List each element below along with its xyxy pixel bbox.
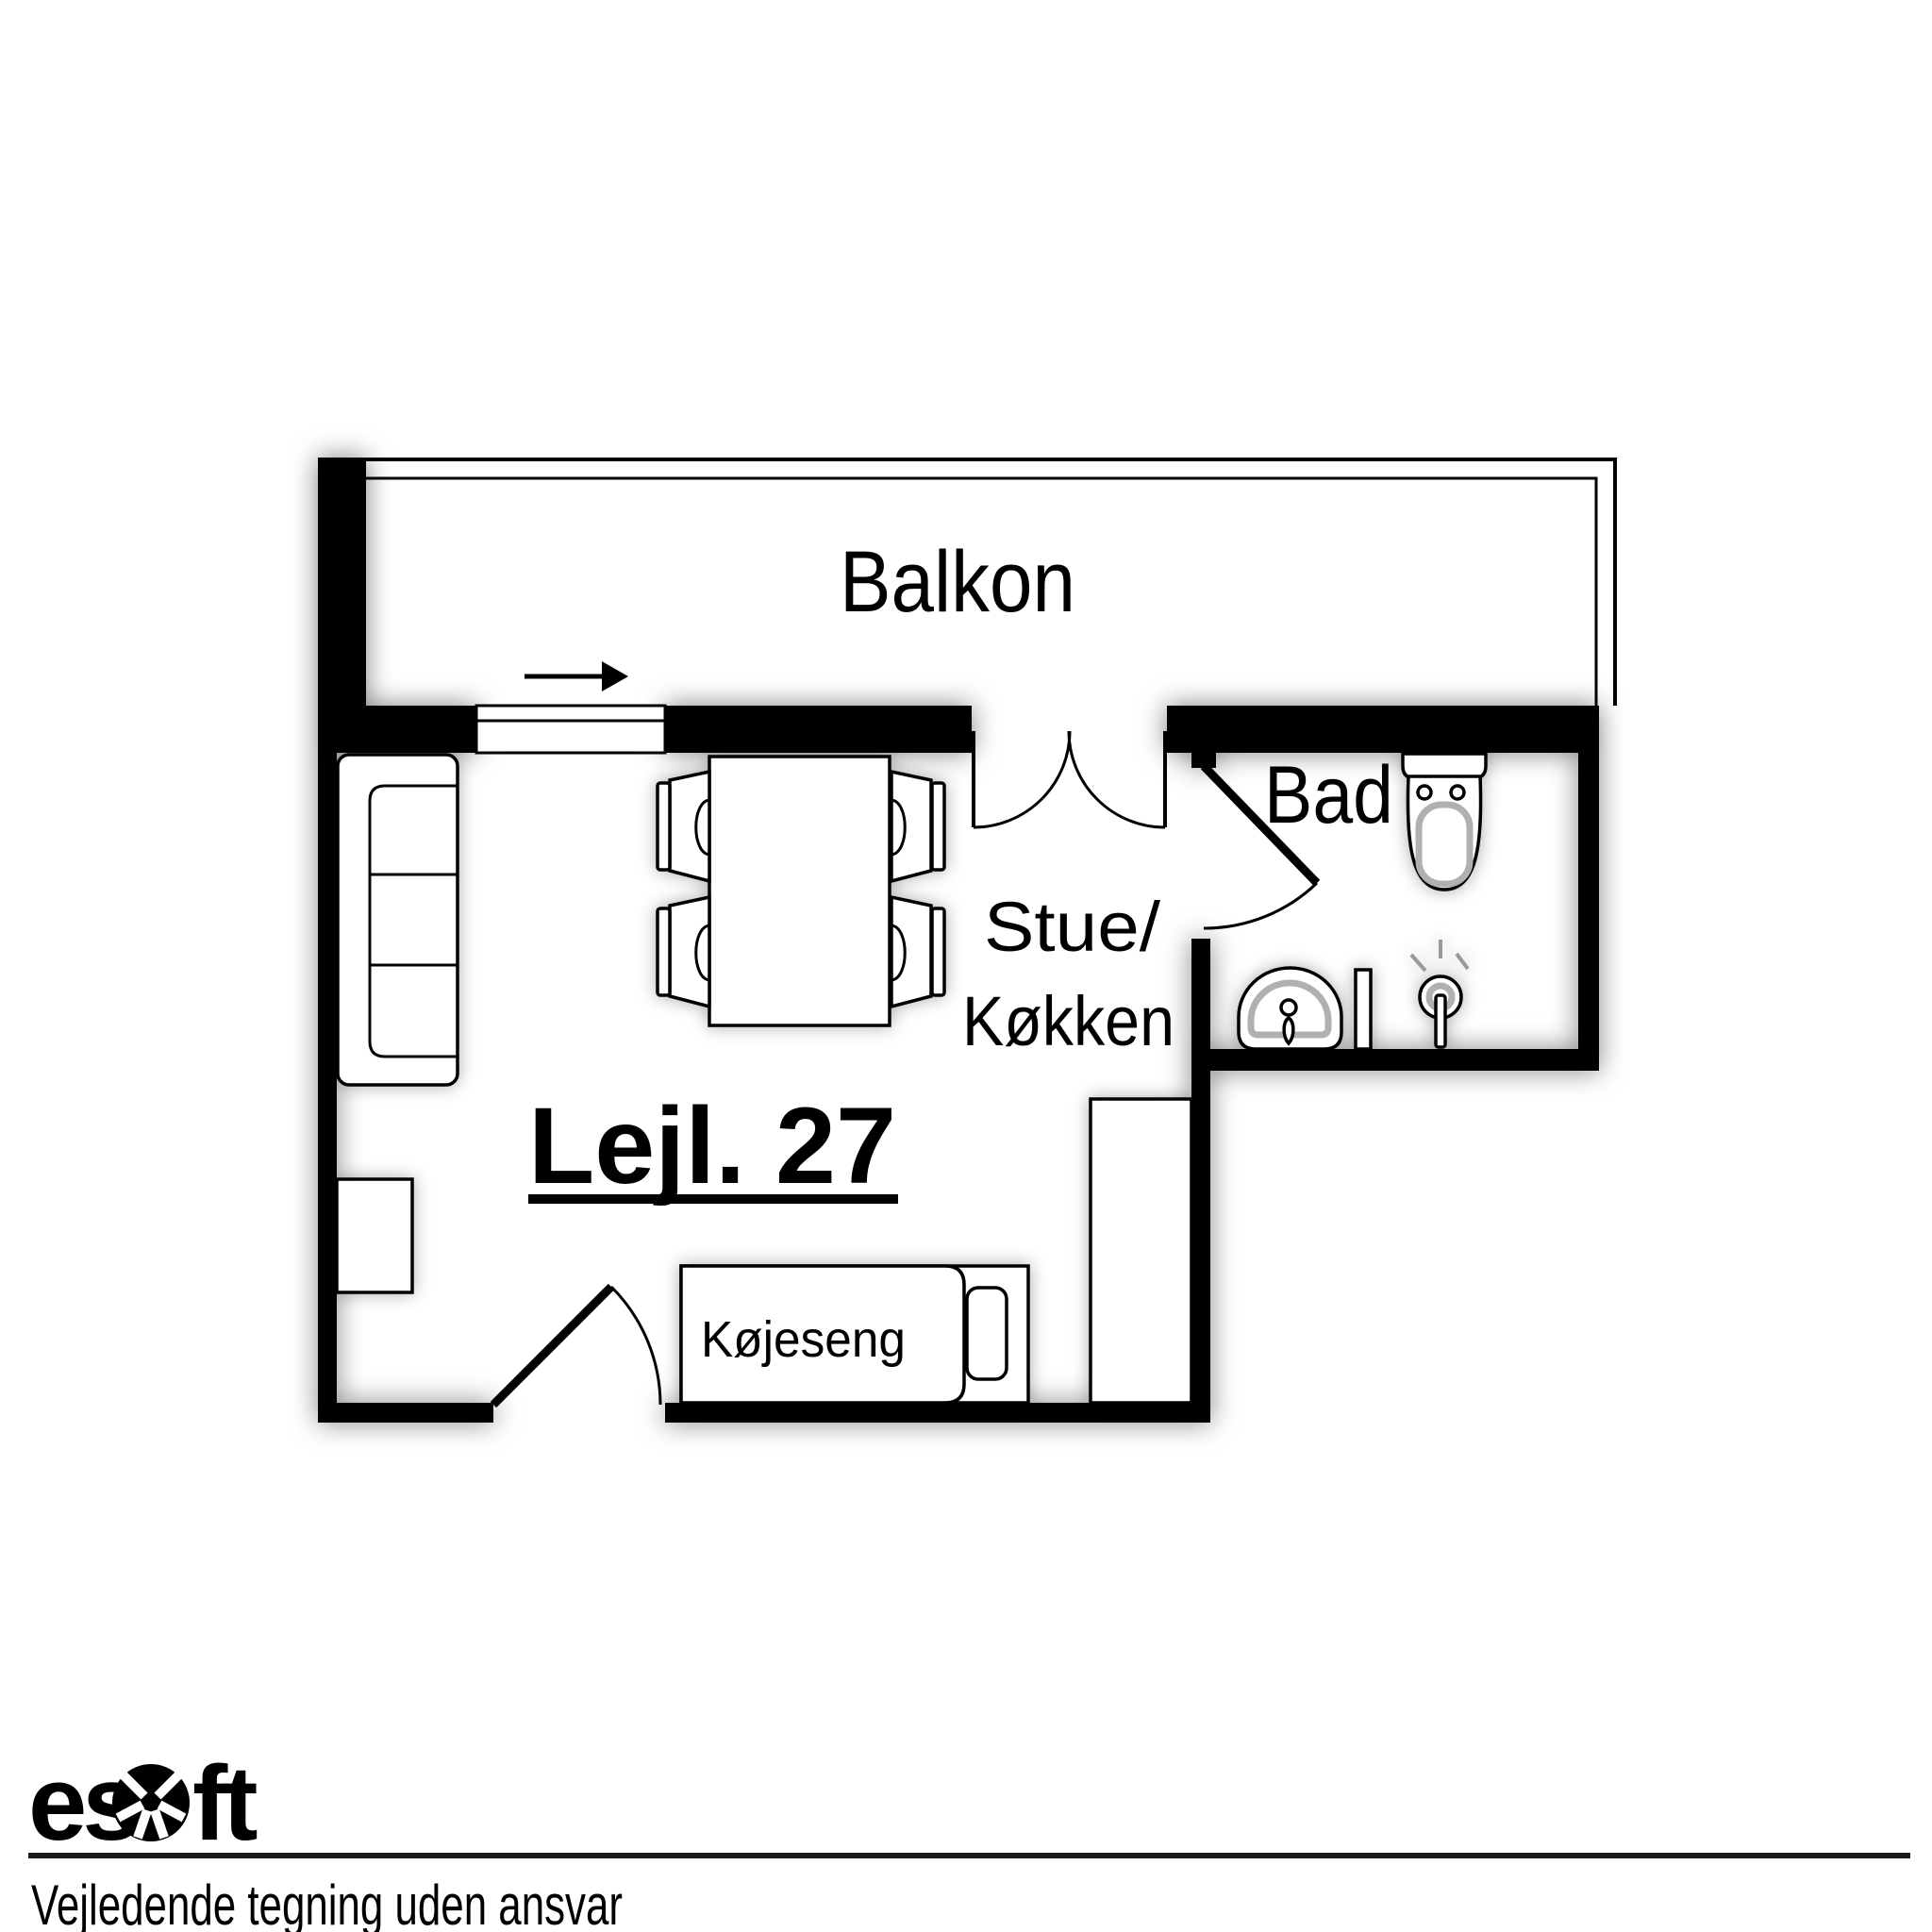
bottom-wall-left-segment: [318, 1403, 493, 1423]
arrow-head: [602, 661, 628, 691]
entry-door-leaf: [493, 1287, 611, 1405]
bed-pillow: [967, 1288, 1007, 1379]
balcony-label: Balkon: [840, 534, 1075, 630]
shower-screen-divider: [1356, 970, 1371, 1049]
bathroom-bottom-wall: [1191, 1049, 1599, 1071]
shower-spray-ray: [1457, 954, 1468, 969]
dining-table: [709, 757, 890, 1025]
bathroom-door-swing-arc: [1204, 883, 1317, 928]
apartment-label: Lejl. 27: [528, 1086, 896, 1207]
top-wall-left-segment: [318, 706, 476, 753]
sliding-door: [476, 661, 665, 753]
living-kitchen-label-line2: Køkken: [962, 982, 1174, 1060]
living-kitchen-label-line1: Stue/: [984, 888, 1160, 966]
french-door-left-swing-arc: [974, 731, 1070, 827]
chair-backrest: [932, 783, 944, 870]
dining-chair: [891, 897, 944, 1007]
shower-head: [1411, 940, 1468, 1047]
chair-seat: [891, 772, 931, 881]
esoft-logo: es ft: [28, 1744, 257, 1862]
balcony-french-doors: [974, 731, 1165, 827]
bunk-bed-label: Køjeseng: [701, 1311, 906, 1368]
wardrobe-cabinet: [1091, 1099, 1191, 1403]
shower-spray-ray: [1411, 955, 1425, 971]
living-room-furniture: [337, 755, 1191, 1403]
logo-shutter-o-icon: [112, 1764, 190, 1841]
top-wall-right-segment: [1167, 706, 1599, 753]
footer-separator-line: [28, 1853, 1910, 1858]
apartment-label-underline: [528, 1194, 898, 1204]
bathroom-right-wall: [1578, 706, 1599, 1071]
dining-chair: [891, 772, 944, 881]
sofa: [338, 755, 458, 1085]
left-wall: [318, 706, 337, 1423]
entry-door-swing-arc: [611, 1287, 660, 1405]
shower-handle: [1436, 995, 1445, 1047]
dining-chair: [658, 772, 709, 881]
bathroom-door-hinge-block: [1191, 753, 1216, 768]
dining-chair: [658, 897, 709, 1007]
toilet-tank: [1403, 754, 1486, 778]
chair-backrest: [932, 908, 944, 995]
balcony-left-wall: [318, 458, 366, 708]
floorplan-canvas: Balkon Bad Stue/ Køkken Lejl. 27 Køjesen…: [0, 0, 1932, 1932]
living-room-right-wall: [1191, 939, 1210, 1423]
wall-shelf-radiator: [337, 1179, 412, 1292]
sofa-frame: [338, 755, 458, 1085]
sink: [1239, 968, 1341, 1049]
logo-text-suffix: ft: [192, 1744, 257, 1862]
toilet: [1403, 754, 1486, 890]
top-wall-middle-segment: [665, 706, 972, 753]
chair-backrest: [658, 783, 670, 870]
entry-door: [493, 1287, 660, 1405]
chair-seat: [670, 772, 709, 881]
footer-disclaimer: Vejledende tegning uden ansvar: [31, 1874, 623, 1932]
toilet-hinge-bolt: [1451, 786, 1464, 799]
chair-seat: [891, 897, 931, 1007]
french-door-right-swing-arc: [1069, 731, 1165, 827]
bottom-wall-right-segment: [665, 1403, 1210, 1423]
chair-backrest: [658, 908, 670, 995]
dining-set: [658, 757, 944, 1025]
chair-seat: [670, 897, 709, 1007]
sink-drain: [1281, 1000, 1296, 1015]
floorplan-page: Balkon Bad Stue/ Køkken Lejl. 27 Køjesen…: [0, 0, 1932, 1932]
sliding-door-direction-arrow-icon: [525, 661, 628, 691]
bathroom-label: Bad: [1264, 750, 1393, 841]
sliding-door-panel: [476, 706, 665, 753]
sink-tap-handle: [1284, 1018, 1293, 1043]
toilet-hinge-bolt: [1418, 786, 1431, 799]
apartment-label-group: Lejl. 27: [528, 1086, 898, 1207]
